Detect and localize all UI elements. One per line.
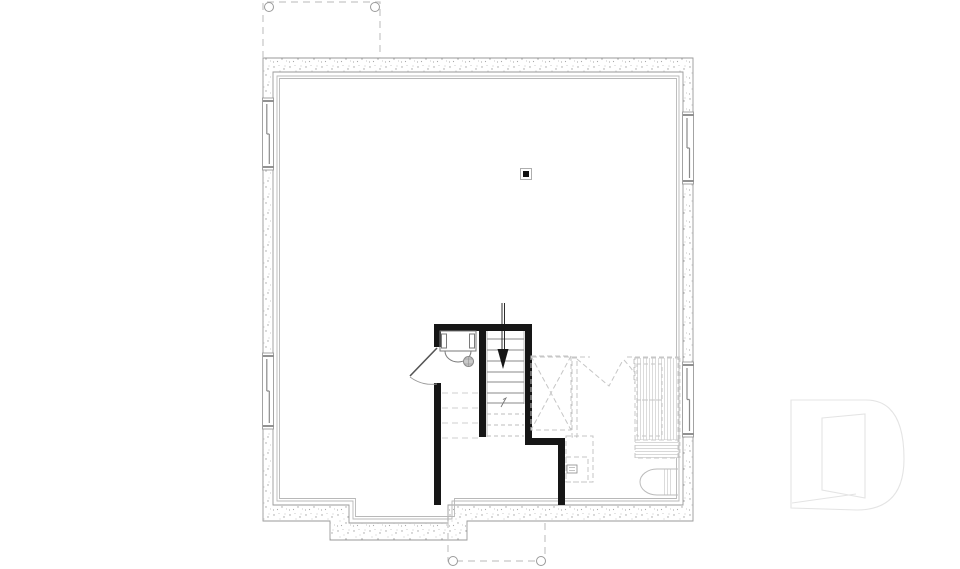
- interior-finish-line: [277, 76, 679, 519]
- stair-stringers: [487, 331, 524, 437]
- porch-post: [371, 3, 380, 12]
- stair-treads: [487, 339, 524, 403]
- future-door-dashes: [577, 359, 623, 386]
- door-leaf: [410, 348, 437, 376]
- watermark-d-door: [822, 414, 865, 498]
- builder-watermark: [791, 400, 904, 510]
- watermark-d-slit: [792, 494, 856, 503]
- vanity-end: [470, 334, 475, 348]
- storage-shelving: [635, 358, 680, 458]
- top-porch-outline: [263, 2, 380, 58]
- porch-post: [537, 557, 546, 566]
- future-wall-stub: [572, 358, 577, 437]
- steel-column: [521, 169, 532, 180]
- arrowhead-down: [498, 349, 509, 369]
- window-left-lower: [263, 353, 274, 429]
- vanity-end: [442, 334, 447, 348]
- floorplan-page: [0, 0, 960, 569]
- wall-segment: [558, 445, 565, 505]
- windows: [263, 98, 694, 437]
- floor-plan-canvas: [0, 0, 960, 569]
- wall-segment: [434, 383, 441, 505]
- sump-fitting: [567, 465, 577, 473]
- foundation-wall: [263, 58, 693, 540]
- door-arc: [410, 377, 437, 384]
- porch-post: [265, 3, 274, 12]
- stair-down-arrow: [498, 303, 509, 369]
- wall-segment: [525, 438, 565, 445]
- bath-rough-in-fixtures: [440, 331, 476, 367]
- understair-headroom-dashes: [442, 393, 478, 438]
- wall-segment: [434, 324, 532, 331]
- wall-segment: [479, 331, 486, 437]
- stair-treads-dashed: [487, 414, 524, 436]
- door-swing: [410, 348, 437, 384]
- watermark-d-outer: [791, 400, 904, 510]
- window-left-upper: [263, 98, 274, 170]
- window-right-upper: [683, 112, 694, 184]
- water-tank: [640, 469, 678, 495]
- top-porch-posts: [265, 3, 380, 12]
- window-right-lower: [683, 362, 694, 437]
- sump-box-outer: [566, 436, 593, 482]
- porch-post: [449, 557, 458, 566]
